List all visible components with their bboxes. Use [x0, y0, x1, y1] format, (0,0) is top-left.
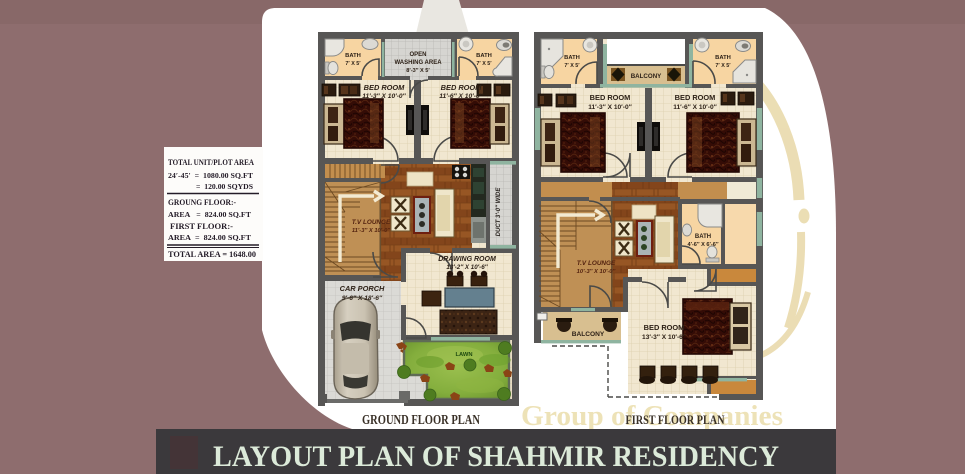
svg-text:CAR PORCH: CAR PORCH [340, 284, 385, 293]
svg-text:WASHING AREA: WASHING AREA [394, 60, 442, 66]
svg-text:DUCT 3′-0″ WIDE: DUCT 3′-0″ WIDE [496, 187, 502, 237]
svg-text:4′-6″ X 6′-6″: 4′-6″ X 6′-6″ [687, 242, 718, 248]
svg-text:7′ X 5′: 7′ X 5′ [345, 61, 361, 67]
svg-text:LAWN: LAWN [455, 352, 472, 358]
svg-text:BATH: BATH [695, 234, 711, 240]
svg-text:TOTAL AREA = 1648.00: TOTAL AREA = 1648.00 [168, 250, 256, 259]
svg-text:BED ROOM: BED ROOM [590, 93, 631, 102]
svg-text:13′-3″ X 10′-6″: 13′-3″ X 10′-6″ [642, 334, 687, 341]
svg-text:TOTAL UNIT/PLOT AREA: TOTAL UNIT/PLOT AREA [168, 158, 254, 167]
svg-text:= 120.00 SQYDS: = 120.00 SQYDS [196, 182, 253, 191]
svg-text:24′-45′ = 1080.00 SQ.FT: 24′-45′ = 1080.00 SQ.FT [168, 171, 254, 180]
svg-text:GROUND FLOOR PLAN: GROUND FLOOR PLAN [362, 412, 480, 427]
svg-text:DRAWING ROOM: DRAWING ROOM [438, 256, 496, 263]
svg-text:9′-6″ X 18′-6″: 9′-6″ X 18′-6″ [342, 295, 383, 302]
svg-text:FIRST FLOOR PLAN: FIRST FLOOR PLAN [626, 412, 725, 427]
svg-text:BATH: BATH [715, 55, 731, 61]
svg-text:BED ROOM: BED ROOM [644, 323, 685, 332]
svg-text:BATH: BATH [345, 53, 361, 59]
svg-text:BED ROOM: BED ROOM [441, 83, 482, 92]
svg-text:11′-3″ X 10′-0″: 11′-3″ X 10′-0″ [352, 228, 390, 234]
svg-text:BATH: BATH [564, 55, 580, 61]
svg-text:GROUNG FLOOR:-: GROUNG FLOOR:- [168, 198, 236, 207]
svg-text:T.V LOUNGE: T.V LOUNGE [577, 260, 616, 267]
svg-text:11′-3″ X 10′-0″: 11′-3″ X 10′-0″ [588, 104, 632, 111]
svg-text:8′-3″ X 5′: 8′-3″ X 5′ [406, 68, 430, 74]
svg-text:BED ROOM: BED ROOM [675, 93, 716, 102]
svg-text:7′ X 5′: 7′ X 5′ [564, 63, 580, 69]
svg-text:BALCONY: BALCONY [631, 73, 662, 80]
svg-text:7′ X 5′: 7′ X 5′ [715, 63, 731, 69]
svg-text:10′-3″ X 10′-0″: 10′-3″ X 10′-0″ [577, 269, 616, 275]
svg-text:AREA = 824.00 SQ.FT: AREA = 824.00 SQ.FT [168, 233, 252, 242]
svg-text:13′-2″ X 10′-6″: 13′-2″ X 10′-6″ [446, 264, 488, 271]
svg-text:LAYOUT PLAN OF SHAHMIR RESIDEN: LAYOUT PLAN OF SHAHMIR RESIDENCY [213, 440, 779, 473]
svg-text:11′-6″ X 10′-0″: 11′-6″ X 10′-0″ [673, 104, 717, 111]
svg-text:OPEN: OPEN [409, 52, 426, 58]
svg-text:T.V LOUNGE: T.V LOUNGE [352, 219, 391, 226]
svg-text:11′-6″ X 10′-0″: 11′-6″ X 10′-0″ [439, 93, 483, 100]
svg-text:BALCONY: BALCONY [572, 331, 605, 338]
svg-text:7′ X 5′: 7′ X 5′ [476, 61, 492, 67]
svg-text:BATH: BATH [476, 53, 492, 59]
svg-text:BED ROOM: BED ROOM [364, 83, 405, 92]
svg-text:FIRST FLOOR:-: FIRST FLOOR:- [170, 222, 233, 231]
svg-text:AREA = 824.00 SQ.FT: AREA = 824.00 SQ.FT [168, 210, 252, 219]
svg-text:11′-3″ X 10′-0″: 11′-3″ X 10′-0″ [362, 93, 406, 100]
